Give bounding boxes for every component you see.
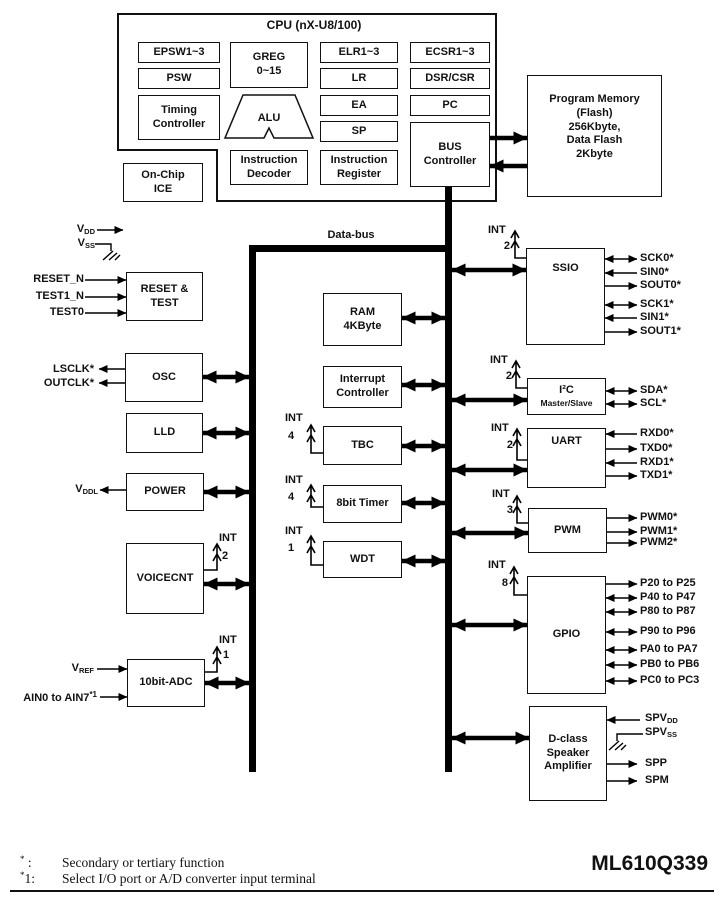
wdt-int-label: INT bbox=[285, 525, 303, 538]
block-diagram: CPU (nX-U8/100) EPSW1~3 PSW Timing Contr… bbox=[0, 0, 723, 900]
wdt-block: WDT bbox=[323, 541, 402, 578]
data-bus-label: Data-bus bbox=[301, 229, 401, 242]
p80-pin-label: P80 to P87 bbox=[640, 605, 696, 618]
footnote-1-text: Secondary or tertiary function bbox=[62, 855, 224, 870]
instruction-register-block: Instruction Register bbox=[320, 150, 398, 185]
power-block: POWER bbox=[126, 473, 204, 511]
dsr-csr-register-block: DSR/CSR bbox=[410, 68, 490, 89]
uart-int-label: INT bbox=[491, 422, 509, 435]
footnote-1-star: * bbox=[20, 854, 25, 864]
spvss-wire bbox=[617, 734, 643, 741]
tbc-int-arrow bbox=[307, 425, 323, 453]
adc-int-count: 1 bbox=[223, 649, 229, 662]
sda-pin-label: SDA* bbox=[640, 384, 668, 397]
pwm2-pin-label: PWM2* bbox=[640, 536, 677, 549]
rxd0-pin-label: RXD0* bbox=[640, 427, 674, 440]
vddl-sub: DDL bbox=[83, 487, 98, 496]
footnote-1-colon: : bbox=[28, 855, 32, 870]
footnote-select-io: *1:Select I/O port or A/D converter inpu… bbox=[20, 870, 316, 887]
ssio-int-arrow bbox=[511, 231, 526, 258]
footnote-2-colon: : bbox=[31, 871, 35, 886]
pwm0-pin-label: PWM0* bbox=[640, 511, 677, 524]
sin1-pin-label: SIN1* bbox=[640, 311, 669, 324]
part-number: ML610Q339 bbox=[505, 852, 708, 876]
dclass-amp-block: D-class Speaker Amplifier bbox=[529, 706, 607, 801]
vddl-base: V bbox=[75, 483, 82, 495]
on-chip-ice-block: On-Chip ICE bbox=[123, 163, 203, 202]
i2c-label: I²C bbox=[541, 384, 593, 398]
spp-pin-label: SPP bbox=[645, 757, 667, 770]
i2c-sublabel: Master/Slave bbox=[541, 398, 593, 409]
i2c-block: I²CMaster/Slave bbox=[527, 378, 606, 415]
footnote-secondary: * :Secondary or tertiary function bbox=[20, 854, 224, 871]
uart-int-count: 2 bbox=[499, 439, 513, 452]
resetn-pin-label: RESET_N bbox=[18, 273, 84, 286]
epsw-register-block: EPSW1~3 bbox=[138, 42, 220, 63]
ain-base: AIN0 to AIN7 bbox=[23, 692, 89, 704]
pc0-pin-label: PC0 to PC3 bbox=[640, 674, 699, 687]
timer8-int-arrow bbox=[307, 485, 323, 507]
uart-block: UART bbox=[527, 428, 606, 488]
p40-pin-label: P40 to P47 bbox=[640, 591, 696, 604]
pwm-int-count: 3 bbox=[499, 504, 513, 517]
vddl-pin-label: VDDL bbox=[55, 483, 98, 497]
sout1-pin-label: SOUT1* bbox=[640, 325, 681, 338]
ecsr-register-block: ECSR1~3 bbox=[410, 42, 490, 63]
vdd-sub: DD bbox=[84, 227, 95, 236]
psw-register-block: PSW bbox=[138, 68, 220, 89]
footer-rule bbox=[10, 890, 714, 892]
gpio-int-count: 8 bbox=[494, 577, 508, 590]
sck1-pin-label: SCK1* bbox=[640, 298, 674, 311]
pb0-pin-label: PB0 to PB6 bbox=[640, 658, 699, 671]
gpio-block: GPIO bbox=[527, 576, 606, 694]
cpu-title: CPU (nX-U8/100) bbox=[214, 19, 414, 33]
wdt-int-arrow bbox=[307, 536, 323, 565]
spvss-sub: SS bbox=[667, 730, 677, 739]
i2c-int-count: 2 bbox=[498, 370, 512, 383]
sck0-pin-label: SCK0* bbox=[640, 252, 674, 265]
i2c-int-label: INT bbox=[490, 354, 508, 367]
pwm-int-label: INT bbox=[492, 488, 510, 501]
interrupt-controller-block: Interrupt Controller bbox=[323, 366, 402, 408]
vss-wire bbox=[95, 244, 111, 251]
vref-pin-label: VREF bbox=[50, 662, 94, 676]
ain-pin-label: AIN0 to AIN7*1 bbox=[14, 690, 97, 705]
ssio-int-label: INT bbox=[488, 224, 506, 237]
p20-pin-label: P20 to P25 bbox=[640, 577, 696, 590]
tbc-int-count: 4 bbox=[288, 430, 294, 443]
elr-register-block: ELR1~3 bbox=[320, 42, 398, 63]
spvdd-pin-label: SPVDD bbox=[645, 712, 678, 726]
scl-pin-label: SCL* bbox=[640, 397, 666, 410]
program-memory-block: Program Memory (Flash) 256Kbyte, Data Fl… bbox=[527, 75, 662, 197]
uart-int-arrow bbox=[513, 429, 527, 460]
footnote-2-text: Select I/O port or A/D converter input t… bbox=[62, 871, 316, 886]
pa0-pin-label: PA0 to PA7 bbox=[640, 643, 698, 656]
sp-register-block: SP bbox=[320, 121, 398, 142]
i2c-int-arrow bbox=[512, 361, 527, 388]
voicecnt-int-arrow bbox=[204, 544, 221, 570]
outclk-pin-label: OUTCLK* bbox=[30, 377, 94, 390]
vss-ground-icon bbox=[103, 251, 120, 260]
test0-pin-label: TEST0 bbox=[18, 306, 84, 319]
voicecnt-block: VOICECNT bbox=[126, 543, 204, 614]
txd1-pin-label: TXD1* bbox=[640, 469, 672, 482]
vref-base: V bbox=[72, 662, 79, 674]
osc-block: OSC bbox=[125, 353, 203, 402]
sout0-pin-label: SOUT0* bbox=[640, 279, 681, 292]
spvss-pin-label: SPVSS bbox=[645, 726, 677, 740]
spm-pin-label: SPM bbox=[645, 774, 669, 787]
vss-base: V bbox=[78, 237, 85, 249]
footnote-1-symbol: * : bbox=[20, 854, 62, 871]
i2c-label-wrap: I²CMaster/Slave bbox=[541, 384, 593, 408]
adc-int-arrow bbox=[205, 647, 221, 672]
timer8-int-count: 4 bbox=[288, 491, 294, 504]
greg-register-block: GREG 0~15 bbox=[230, 42, 308, 88]
test1n-pin-label: TEST1_N bbox=[18, 290, 84, 303]
vss-pin-label: VSS bbox=[50, 237, 95, 251]
vss-sub: SS bbox=[85, 241, 95, 250]
bus-lines bbox=[249, 187, 452, 772]
spvss-base: SPV bbox=[645, 726, 667, 738]
gpio-int-label: INT bbox=[488, 559, 506, 572]
ain-sup: *1 bbox=[89, 690, 97, 699]
lld-block: LLD bbox=[126, 413, 203, 453]
alu-label: ALU bbox=[229, 112, 309, 125]
sin0-pin-label: SIN0* bbox=[640, 266, 669, 279]
lr-register-block: LR bbox=[320, 68, 398, 89]
gpio-int-arrow bbox=[510, 567, 527, 595]
lsclk-pin-label: LSCLK* bbox=[30, 363, 94, 376]
tbc-block: TBC bbox=[323, 426, 402, 465]
ssio-int-count: 2 bbox=[496, 240, 510, 253]
p90-pin-label: P90 to P96 bbox=[640, 625, 696, 638]
adc-block: 10bit-ADC bbox=[127, 659, 205, 707]
instruction-decoder-block: Instruction Decoder bbox=[230, 150, 308, 185]
ea-register-block: EA bbox=[320, 95, 398, 116]
timer8-block: 8bit Timer bbox=[323, 485, 402, 523]
voicecnt-int-label: INT bbox=[219, 532, 237, 545]
spvdd-sub: DD bbox=[667, 716, 678, 725]
voicecnt-int-count: 2 bbox=[222, 550, 228, 563]
bus-controller-block: BUS Controller bbox=[410, 122, 490, 187]
adc-int-label: INT bbox=[219, 634, 237, 647]
spvdd-base: SPV bbox=[645, 712, 667, 724]
vref-sub: REF bbox=[79, 666, 94, 675]
ram-block: RAM 4KByte bbox=[323, 293, 402, 346]
timer8-int-label: INT bbox=[285, 474, 303, 487]
txd0-pin-label: TXD0* bbox=[640, 442, 672, 455]
rxd1-pin-label: RXD1* bbox=[640, 456, 674, 469]
spvss-ground-icon bbox=[609, 741, 626, 750]
pwm-int-arrow bbox=[513, 496, 528, 523]
pwm-block: PWM bbox=[528, 508, 607, 553]
ssio-block: SSIO bbox=[526, 248, 605, 345]
wdt-int-count: 1 bbox=[288, 542, 294, 555]
reset-test-block: RESET & TEST bbox=[126, 272, 203, 321]
tbc-int-label: INT bbox=[285, 412, 303, 425]
pc-register-block: PC bbox=[410, 95, 490, 116]
vdd-pin-label: VDD bbox=[50, 223, 95, 237]
footnote-2-symbol: *1: bbox=[20, 870, 62, 887]
timing-controller-block: Timing Controller bbox=[138, 95, 220, 140]
